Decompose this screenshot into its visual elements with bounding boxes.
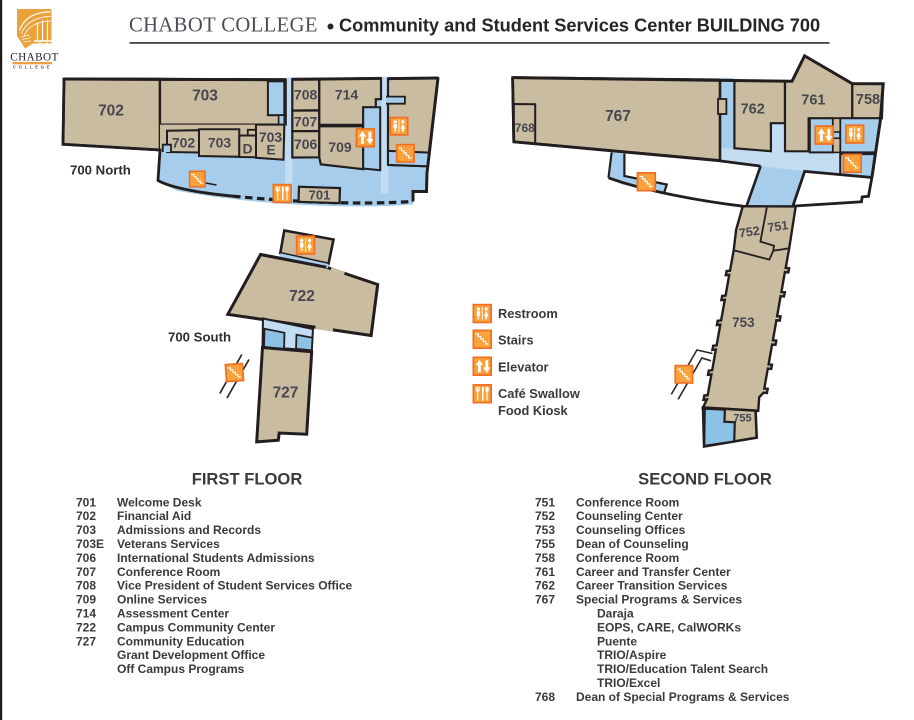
svg-text:Career and Transfer Center: Career and Transfer Center	[576, 565, 731, 579]
svg-text:714: 714	[335, 87, 359, 103]
svg-text:758: 758	[535, 551, 555, 565]
svg-text:Assessment Center: Assessment Center	[117, 607, 229, 621]
svg-text:761: 761	[801, 93, 825, 109]
svg-text:767: 767	[605, 108, 631, 125]
svg-text:SECOND FLOOR: SECOND FLOOR	[638, 470, 772, 489]
svg-text:Stairs: Stairs	[498, 333, 534, 348]
svg-text:703E: 703E	[76, 537, 104, 551]
svg-text:Off Campus Programs: Off Campus Programs	[117, 662, 245, 676]
svg-text:Career Transition Services: Career Transition Services	[576, 579, 728, 593]
svg-text:Vice President of Student Serv: Vice President of Student Services Offic…	[117, 579, 353, 593]
svg-text:Special Programs & Services: Special Programs & Services	[576, 593, 742, 607]
svg-text:707: 707	[76, 565, 96, 579]
svg-text:Conference Room: Conference Room	[117, 565, 220, 579]
svg-text:714: 714	[76, 607, 96, 621]
svg-text:700 North: 700 North	[70, 163, 131, 178]
svg-text:703: 703	[208, 135, 232, 151]
svg-text:Online Services: Online Services	[117, 593, 207, 607]
svg-text:702: 702	[98, 103, 124, 120]
svg-text:708: 708	[76, 579, 96, 593]
svg-text:702: 702	[172, 135, 196, 151]
svg-text:753: 753	[535, 523, 555, 537]
svg-text:TRIO/Education Talent Search: TRIO/Education Talent Search	[597, 662, 768, 676]
svg-text:Welcome Desk: Welcome Desk	[117, 495, 202, 509]
svg-text:Food Kiosk: Food Kiosk	[498, 403, 569, 418]
svg-text:CHABOT COLLEGE: CHABOT COLLEGE	[129, 15, 318, 37]
svg-text:Elevator: Elevator	[498, 360, 549, 375]
svg-text:701: 701	[309, 188, 331, 203]
svg-text:COLLEGE: COLLEGE	[13, 65, 52, 70]
svg-text:722: 722	[289, 288, 315, 305]
svg-text:Puente: Puente	[597, 634, 637, 648]
svg-text:TRIO/Aspire: TRIO/Aspire	[597, 648, 667, 662]
svg-text:706: 706	[294, 136, 318, 152]
svg-text:Admissions and Records: Admissions and Records	[117, 523, 261, 537]
svg-text:755: 755	[733, 413, 751, 425]
svg-text:768: 768	[515, 121, 535, 135]
svg-text:752: 752	[535, 509, 555, 523]
svg-text:767: 767	[535, 593, 555, 607]
svg-text:Financial Aid: Financial Aid	[117, 509, 191, 523]
svg-text:E: E	[266, 142, 275, 158]
svg-text:TRIO/Excel: TRIO/Excel	[597, 676, 660, 690]
svg-text:Counseling Offices: Counseling Offices	[576, 523, 686, 537]
svg-text:752: 752	[738, 224, 761, 241]
svg-text:706: 706	[76, 551, 96, 565]
svg-text:Community and Student Services: Community and Student Services Center BU…	[339, 16, 820, 36]
svg-text:762: 762	[535, 579, 555, 593]
svg-text:768: 768	[535, 690, 555, 704]
svg-text:Restroom: Restroom	[498, 306, 558, 321]
svg-text:700 South: 700 South	[168, 330, 231, 345]
svg-text:751: 751	[535, 495, 555, 509]
svg-text:Dean of Special Programs & Ser: Dean of Special Programs & Services	[576, 690, 790, 704]
svg-text:Café Swallow: Café Swallow	[498, 386, 580, 401]
svg-text:Campus Community Center: Campus Community Center	[117, 620, 275, 634]
svg-text:709: 709	[328, 139, 352, 155]
svg-text:EOPS, CARE, CalWORKs: EOPS, CARE, CalWORKs	[597, 620, 741, 634]
svg-text:702: 702	[76, 509, 96, 523]
svg-text:CHABOT: CHABOT	[10, 52, 58, 64]
svg-text:703: 703	[76, 523, 96, 537]
svg-text:Conference Room: Conference Room	[576, 551, 679, 565]
svg-text:Veterans Services: Veterans Services	[117, 537, 220, 551]
svg-text:761: 761	[535, 565, 555, 579]
svg-text:751: 751	[767, 218, 790, 235]
svg-text:762: 762	[741, 102, 765, 118]
svg-text:FIRST FLOOR: FIRST FLOOR	[192, 470, 303, 489]
svg-text:708: 708	[294, 87, 318, 103]
svg-text:703: 703	[192, 88, 218, 105]
svg-text:International Students Admissi: International Students Admissions	[117, 551, 315, 565]
svg-text:Conference Room: Conference Room	[576, 495, 679, 509]
svg-text:755: 755	[535, 537, 555, 551]
svg-text:Community Education: Community Education	[117, 634, 244, 648]
svg-text:727: 727	[76, 634, 96, 648]
svg-text:758: 758	[856, 92, 880, 108]
svg-text:Daraja: Daraja	[597, 607, 634, 621]
svg-text:753: 753	[732, 315, 755, 330]
svg-text:722: 722	[76, 620, 96, 634]
svg-text:Grant Development Office: Grant Development Office	[117, 648, 265, 662]
svg-text:709: 709	[76, 593, 96, 607]
svg-text:Counseling Center: Counseling Center	[576, 509, 683, 523]
svg-text:D: D	[243, 141, 253, 157]
svg-text:701: 701	[76, 495, 96, 509]
svg-text:727: 727	[273, 385, 299, 402]
svg-text:707: 707	[294, 114, 318, 130]
svg-text:Dean of Counseling: Dean of Counseling	[576, 537, 689, 551]
